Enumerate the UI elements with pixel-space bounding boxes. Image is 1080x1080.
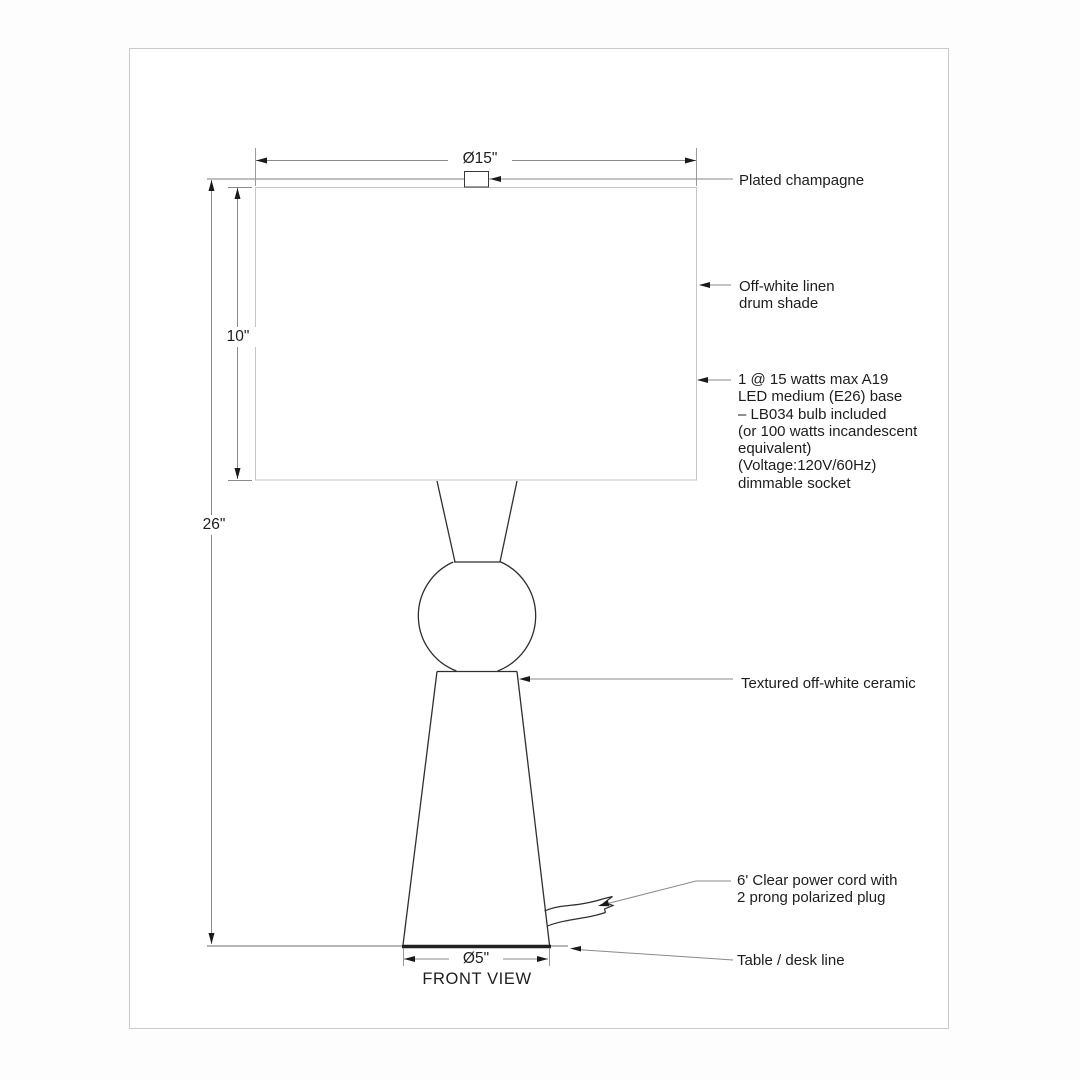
leader-bulb: [697, 377, 731, 383]
callout-body: Textured off-white ceramic: [741, 675, 916, 692]
leader-table: [570, 946, 733, 960]
dimension-label-shade-height: 10": [214, 327, 262, 347]
dimension-label-shade-diameter: Ø15": [448, 149, 512, 169]
callout-bulb: 1 @ 15 watts max A19 LED medium (E26) ba…: [738, 371, 917, 492]
view-title: FRONT VIEW: [397, 970, 557, 989]
lamp-technical-drawing: [0, 0, 1080, 1080]
callout-finial: Plated champagne: [739, 172, 864, 189]
dimension-label-base-diameter: Ø5": [449, 949, 503, 969]
lamp-shade-outline: [256, 172, 697, 481]
leader-cord: [598, 881, 731, 906]
callout-table: Table / desk line: [737, 952, 845, 969]
leader-body: [519, 676, 733, 682]
callout-cord: 6' Clear power cord with 2 prong polariz…: [737, 872, 897, 907]
finial: [465, 172, 489, 188]
lamp-body-outline: [402, 481, 551, 947]
dimension-label-overall-height: 26": [190, 515, 238, 535]
technical-drawing-page: Ø15" 10" 26" Ø5" Plated champagne Off-wh…: [0, 0, 1080, 1080]
leader-shade: [699, 282, 731, 288]
callout-shade: Off-white linen drum shade: [739, 278, 835, 313]
power-cord: [545, 897, 614, 927]
